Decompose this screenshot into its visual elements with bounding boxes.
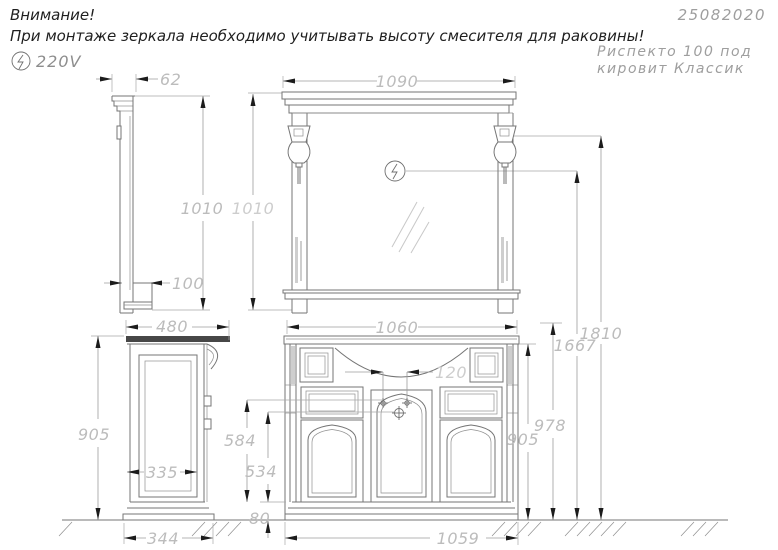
dim-lamp-height: 1810 — [580, 136, 623, 520]
plinth-side — [123, 514, 214, 520]
shelf-bracket — [133, 283, 152, 302]
wall-bracket — [117, 126, 121, 139]
product-name-line2: кировит Классик — [597, 61, 745, 77]
dim-mirror-depth: 62 — [96, 70, 181, 92]
dim-lamp-height-label: 1810 — [580, 324, 623, 343]
dim-mirror-height-front: 1010 — [232, 93, 292, 310]
corner-panel-left — [300, 348, 333, 382]
dim-drain-height-label: 534 — [245, 462, 277, 481]
mirror-cornice — [282, 92, 516, 99]
dim-cabinet-base-width: 1059 — [285, 522, 518, 548]
dim-plinth-height-label: 80 — [249, 509, 270, 528]
dim-cabinet-height-side: 905 — [78, 336, 124, 520]
mirror-front-view — [282, 92, 520, 313]
mirror-side-view — [112, 96, 152, 313]
dim-mirror-width: 1090 — [283, 72, 515, 91]
drawing-canvas: Внимание! При монтаже зеркала необходимо… — [0, 0, 778, 550]
dim-cabinet-height-side-label: 905 — [78, 425, 110, 444]
dim-cabinet-base-width-label: 1059 — [437, 529, 480, 548]
dim-mirror-width-label: 1090 — [376, 72, 419, 91]
drawer-left — [301, 387, 363, 418]
dim-faucet-hole-spacing: 120 — [345, 363, 467, 382]
door-right — [440, 420, 502, 502]
worktop-front — [284, 336, 519, 344]
mirror-power-icon — [385, 161, 405, 181]
dim-backsplash-height-label: 978 — [534, 416, 566, 435]
power-icon — [12, 52, 30, 70]
sink-bowl-side — [207, 344, 218, 369]
plinth-front — [285, 514, 518, 520]
dim-mirror-depth-label: 62 — [160, 70, 181, 89]
attention-text: При монтаже зеркала необходимо учитывать… — [10, 27, 645, 45]
dim-cabinet-base-depth: 344 — [124, 523, 213, 548]
dim-faucet-hole-height-label: 584 — [224, 431, 256, 450]
doc-number: 25082020 — [678, 6, 766, 24]
dim-socket-height: 1667 — [554, 171, 597, 520]
technical-drawing-sheet: Внимание! При монтаже зеркала необходимо… — [0, 0, 778, 550]
dim-cabinet-base-depth-label: 344 — [147, 529, 179, 548]
voltage-note: 220V — [12, 52, 82, 71]
hinge — [204, 396, 211, 406]
corner-panel-right — [470, 348, 503, 382]
dim-mirror-shelf-depth: 100 — [104, 274, 204, 293]
attention-title: Внимание! — [10, 6, 95, 24]
door-center — [371, 390, 432, 502]
drain-hole — [392, 406, 406, 420]
product-name-line1: Риспекто 100 под — [597, 44, 752, 60]
dim-mirror-height-front-label: 1010 — [232, 199, 275, 218]
dim-mirror-shelf-depth-label: 100 — [172, 274, 204, 293]
dim-washbasin-top-width: 1060 — [287, 318, 517, 337]
mirror-glass-hatch — [392, 202, 429, 253]
drawer-right — [440, 387, 502, 418]
vanity-front-view — [284, 336, 519, 520]
dim-cabinet-depth-label: 480 — [156, 317, 188, 336]
vanity-side-view — [123, 336, 230, 520]
mirror-shelf-side — [124, 302, 152, 309]
dim-faucet-hole-height: 584 — [224, 400, 383, 502]
voltage-label: 220V — [36, 52, 82, 71]
door-left — [301, 420, 363, 502]
dim-mirror-height-side-label: 1010 — [181, 199, 224, 218]
worktop-side — [126, 336, 230, 342]
attention-note: Внимание! При монтаже зеркала необходимо… — [10, 6, 645, 45]
dim-drain-height: 534 — [245, 412, 394, 502]
dim-washbasin-top-width-label: 1060 — [376, 318, 419, 337]
hinge — [204, 419, 211, 429]
dim-cabinet-panel-depth-label: 335 — [146, 463, 178, 482]
dim-faucet-hole-spacing-label: 120 — [435, 363, 467, 382]
